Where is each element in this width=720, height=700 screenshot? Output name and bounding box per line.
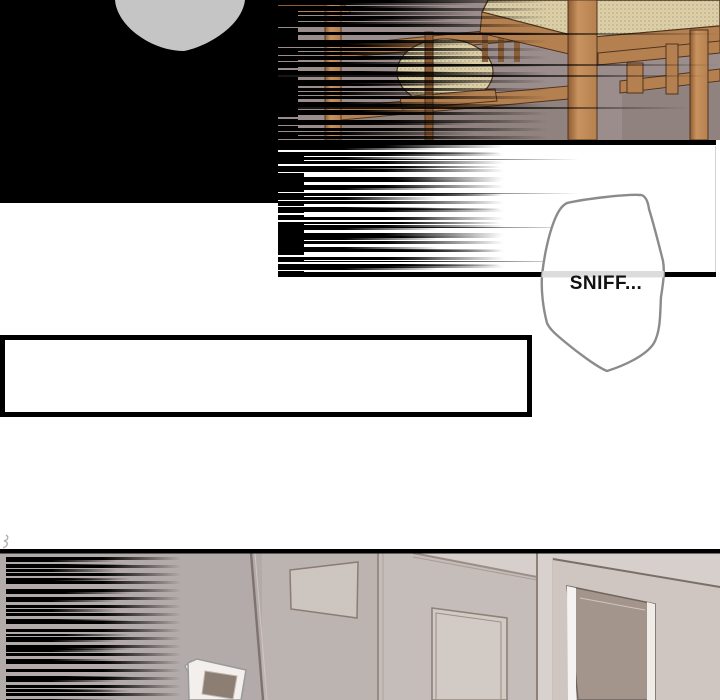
black-panel-mass	[0, 0, 278, 203]
picture-frame	[290, 562, 358, 618]
panel-empty	[0, 335, 532, 417]
panel-edge-line	[715, 146, 716, 272]
corner-strip	[537, 553, 553, 700]
speech-bubble-text: SNIFF...	[550, 274, 662, 294]
speed-lines-bottom	[6, 557, 181, 700]
chair-leg	[568, 0, 597, 140]
long-speed-line	[240, 33, 720, 35]
door-inset	[432, 608, 507, 700]
long-speed-line	[240, 64, 720, 66]
door-highlight-left	[567, 586, 576, 700]
kiosk-screen	[202, 671, 237, 699]
dark-door-panel	[567, 586, 655, 700]
speed-lines-top	[250, 0, 560, 140]
panel-top-border	[0, 549, 720, 554]
head-silhouette	[115, 0, 245, 51]
long-speed-line	[240, 107, 690, 109]
chair-leg	[690, 30, 708, 140]
comic-page: SNIFF...	[0, 0, 720, 700]
long-speed-line	[240, 75, 710, 77]
head-silhouette-svg	[0, 0, 278, 60]
door-highlight-right	[647, 602, 655, 700]
stray-squiggle	[0, 534, 14, 550]
